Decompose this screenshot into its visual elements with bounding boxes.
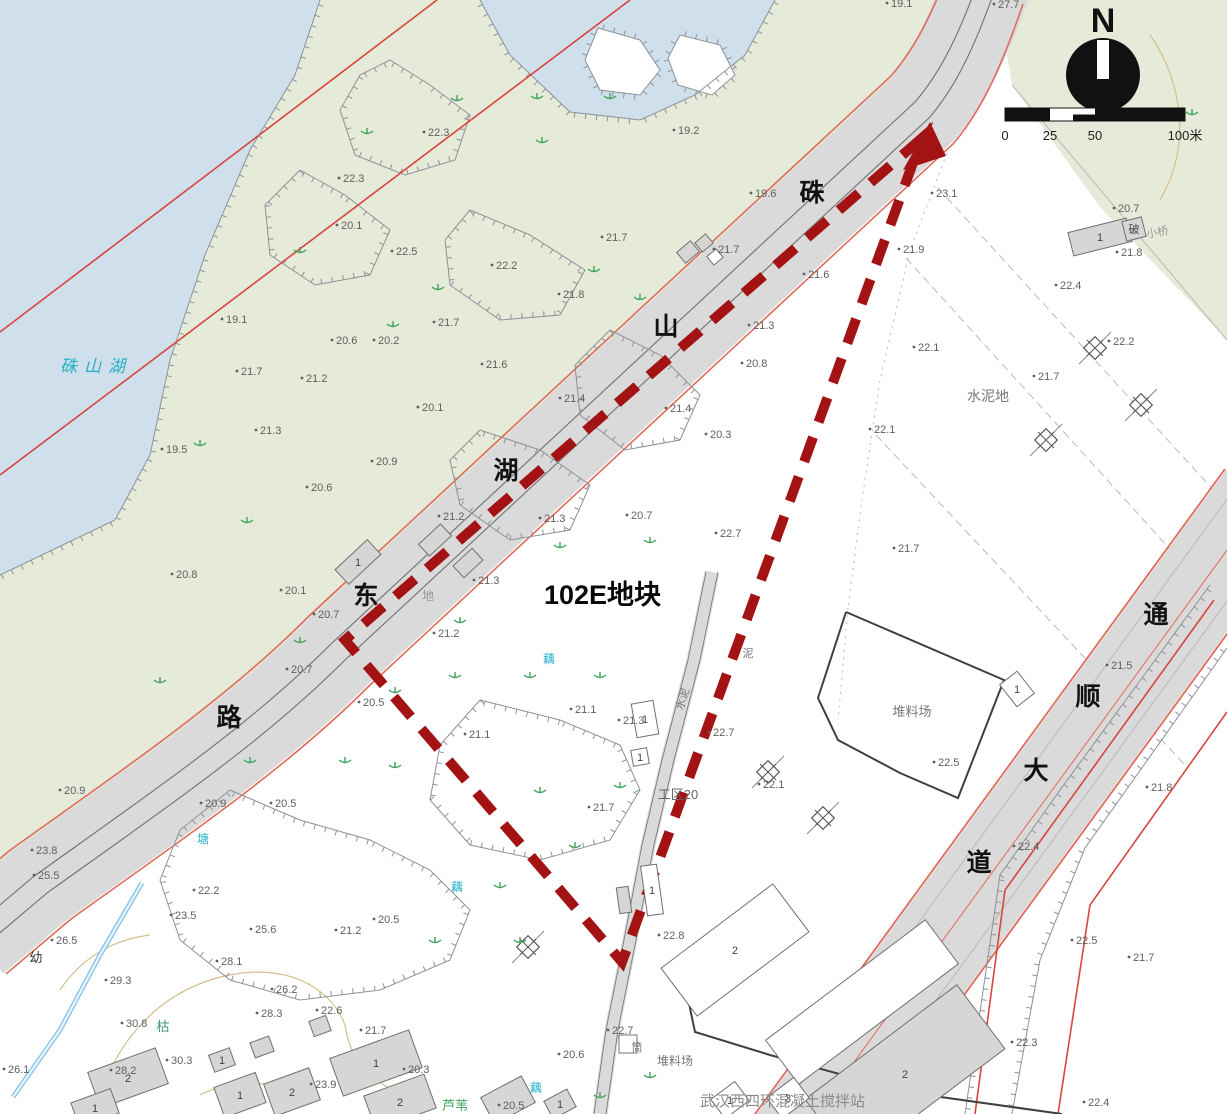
spot-dot bbox=[559, 397, 562, 400]
spot-dot bbox=[335, 929, 338, 932]
spot-dot bbox=[271, 988, 274, 991]
building-label: 1 bbox=[219, 1055, 225, 1067]
spot-dot bbox=[438, 515, 441, 518]
spot-elevation: 20.9 bbox=[376, 456, 397, 468]
spot-dot bbox=[1108, 340, 1111, 343]
bank-tick bbox=[446, 247, 451, 248]
road-name-char: 通 bbox=[1143, 601, 1168, 629]
topographic-map-svg: 1破1111122132121211119.127.723.120.721.82… bbox=[0, 0, 1227, 1114]
spot-dot bbox=[993, 3, 996, 6]
spot-dot bbox=[869, 428, 872, 431]
spot-dot bbox=[1113, 207, 1116, 210]
building-label: 2 bbox=[902, 1069, 908, 1081]
spot-dot bbox=[539, 517, 542, 520]
spot-elevation: 21.7 bbox=[606, 232, 627, 244]
spot-dot bbox=[1106, 664, 1109, 667]
map-label: 武汉西四环混凝土搅拌站 bbox=[700, 1093, 865, 1110]
scalebar-seg bbox=[1050, 108, 1095, 115]
spot-elevation: 22.3 bbox=[1016, 1037, 1037, 1049]
map-label: 工区20 bbox=[658, 787, 698, 802]
spot-dot bbox=[708, 731, 711, 734]
spot-dot bbox=[588, 806, 591, 809]
map-label: 筒 bbox=[632, 1040, 643, 1054]
map-label: 枯 bbox=[156, 1019, 169, 1034]
spot-elevation: 21.2 bbox=[340, 925, 361, 937]
bank-tick bbox=[448, 269, 453, 270]
map-label: 地 bbox=[422, 589, 434, 603]
spot-dot bbox=[417, 406, 420, 409]
spot-dot bbox=[200, 802, 203, 805]
spot-dot bbox=[105, 979, 108, 982]
road-name-char: 道 bbox=[966, 848, 991, 877]
spot-dot bbox=[121, 1022, 124, 1025]
spot-elevation: 21.5 bbox=[1111, 660, 1132, 672]
spot-dot bbox=[313, 613, 316, 616]
spot-elevation: 21.3 bbox=[623, 715, 644, 727]
spot-dot bbox=[360, 1029, 363, 1032]
spot-dot bbox=[898, 248, 901, 251]
spot-elevation: 20.8 bbox=[746, 358, 767, 370]
map-label: 堆料场 bbox=[892, 704, 931, 719]
spot-elevation: 27.7 bbox=[998, 0, 1019, 11]
bank-tick bbox=[449, 279, 454, 280]
spot-elevation: 21.8 bbox=[1121, 247, 1142, 259]
road-name-char: 湖 bbox=[493, 457, 518, 485]
road-name-char: 山 bbox=[653, 313, 678, 341]
spot-elevation: 19.2 bbox=[678, 125, 699, 137]
building-label: 破 bbox=[1129, 222, 1140, 236]
building-label: 1 bbox=[1097, 232, 1103, 244]
spot-elevation: 21.2 bbox=[443, 511, 464, 523]
spot-elevation: 21.6 bbox=[808, 269, 829, 281]
bank-tick bbox=[320, 992, 321, 997]
scalebar-label: 25 bbox=[1043, 128, 1057, 143]
bank-tick bbox=[607, 116, 608, 121]
map-label: 藕 bbox=[451, 880, 463, 894]
bank-tick bbox=[574, 113, 575, 118]
spot-dot bbox=[216, 960, 219, 963]
spot-dot bbox=[1055, 284, 1058, 287]
spot-elevation: 21.3 bbox=[753, 320, 774, 332]
spot-elevation: 21.7 bbox=[1038, 371, 1059, 383]
spot-dot bbox=[31, 849, 34, 852]
map-label: 102E地块 bbox=[544, 580, 662, 610]
spot-elevation: 20.9 bbox=[64, 785, 85, 797]
spot-elevation: 22.4 bbox=[1018, 841, 1039, 853]
map-label: 藕 bbox=[530, 1081, 542, 1095]
map-label: 藕 bbox=[543, 652, 555, 666]
spot-dot bbox=[310, 1083, 313, 1086]
spot-dot bbox=[51, 939, 54, 942]
spot-elevation: 26.2 bbox=[276, 984, 297, 996]
spot-elevation: 20.7 bbox=[318, 609, 339, 621]
spot-elevation: 19.1 bbox=[891, 0, 912, 10]
spot-dot bbox=[491, 264, 494, 267]
spot-dot bbox=[59, 789, 62, 792]
spot-dot bbox=[658, 934, 661, 937]
spot-dot bbox=[250, 928, 253, 931]
building: 破 bbox=[1122, 217, 1146, 241]
bank-tick bbox=[624, 93, 625, 98]
map-label: 水泥地 bbox=[967, 388, 1009, 404]
road-name-char: 硃 bbox=[799, 179, 825, 207]
spot-elevation: 20.1 bbox=[341, 220, 362, 232]
spot-elevation: 20.3 bbox=[408, 1064, 429, 1076]
bank-tick bbox=[618, 118, 619, 123]
spot-elevation: 21.2 bbox=[438, 628, 459, 640]
spot-elevation: 22.2 bbox=[496, 260, 517, 272]
spot-elevation: 21.7 bbox=[718, 244, 739, 256]
spot-elevation: 23.9 bbox=[315, 1079, 336, 1091]
spot-elevation: 20.1 bbox=[422, 402, 443, 414]
spot-dot bbox=[403, 1068, 406, 1071]
spot-dot bbox=[570, 708, 573, 711]
road-name-char: 东 bbox=[353, 581, 378, 610]
spot-dot bbox=[748, 324, 751, 327]
spot-elevation: 21.6 bbox=[486, 359, 507, 371]
spot-elevation: 21.8 bbox=[1151, 782, 1172, 794]
spot-dot bbox=[1071, 939, 1074, 942]
spot-elevation: 21.9 bbox=[903, 244, 924, 256]
spot-elevation: 21.4 bbox=[564, 393, 585, 405]
spot-dot bbox=[498, 1104, 501, 1107]
spot-elevation: 20.2 bbox=[378, 335, 399, 347]
spot-elevation: 28.2 bbox=[115, 1065, 136, 1077]
building-label: 1 bbox=[637, 752, 643, 764]
spot-elevation: 20.5 bbox=[363, 697, 384, 709]
spot-dot bbox=[886, 2, 889, 5]
road-name-char: 路 bbox=[216, 704, 242, 732]
spot-elevation: 23.1 bbox=[936, 188, 957, 200]
map-label: 塘 bbox=[197, 831, 209, 846]
north-arrow-notch bbox=[1097, 40, 1109, 79]
building-label: 1 bbox=[373, 1058, 379, 1070]
spot-dot bbox=[1013, 845, 1016, 848]
spot-dot bbox=[715, 532, 718, 535]
spot-elevation: 20.7 bbox=[631, 510, 652, 522]
spot-elevation: 21.4 bbox=[670, 403, 691, 415]
spot-elevation: 22.7 bbox=[612, 1025, 633, 1037]
spot-dot bbox=[3, 1068, 6, 1071]
spot-dot bbox=[161, 448, 164, 451]
spot-dot bbox=[705, 433, 708, 436]
spot-dot bbox=[423, 131, 426, 134]
spot-elevation: 21.7 bbox=[365, 1025, 386, 1037]
bank-tick bbox=[342, 990, 343, 995]
spot-elevation: 23.8 bbox=[36, 845, 57, 857]
bank-tick bbox=[374, 986, 375, 991]
spot-dot bbox=[607, 1029, 610, 1032]
spot-dot bbox=[256, 1012, 259, 1015]
spot-elevation: 21.3 bbox=[544, 513, 565, 525]
spot-dot bbox=[236, 370, 239, 373]
spot-elevation: 21.7 bbox=[241, 366, 262, 378]
spot-dot bbox=[473, 579, 476, 582]
spot-elevation: 28.3 bbox=[261, 1008, 282, 1020]
spot-elevation: 20.8 bbox=[176, 569, 197, 581]
spot-dot bbox=[306, 486, 309, 489]
spot-dot bbox=[933, 761, 936, 764]
spot-elevation: 25.6 bbox=[255, 924, 276, 936]
spot-elevation: 23.5 bbox=[175, 910, 196, 922]
scalebar-label: 100米 bbox=[1168, 128, 1203, 143]
spot-dot bbox=[558, 293, 561, 296]
bank-tick bbox=[309, 994, 310, 999]
spot-elevation: 22.5 bbox=[938, 757, 959, 769]
spot-dot bbox=[270, 802, 273, 805]
spot-dot bbox=[481, 363, 484, 366]
spot-dot bbox=[280, 589, 283, 592]
spot-elevation: 20.6 bbox=[336, 335, 357, 347]
building-label: 1 bbox=[237, 1090, 243, 1102]
bank-tick bbox=[585, 114, 586, 119]
spot-elevation: 22.7 bbox=[720, 528, 741, 540]
spot-elevation: 19.1 bbox=[226, 314, 247, 326]
building-label: 1 bbox=[1014, 684, 1020, 696]
spot-dot bbox=[301, 377, 304, 380]
spot-elevation: 20.5 bbox=[503, 1100, 524, 1112]
spot-dot bbox=[373, 918, 376, 921]
spot-dot bbox=[286, 668, 289, 671]
spot-dot bbox=[373, 339, 376, 342]
spot-elevation: 22.7 bbox=[713, 727, 734, 739]
spot-dot bbox=[166, 1059, 169, 1062]
spot-elevation: 20.5 bbox=[378, 914, 399, 926]
spot-elevation: 22.3 bbox=[343, 173, 364, 185]
spot-dot bbox=[1011, 1041, 1014, 1044]
bank-tick bbox=[602, 90, 603, 95]
spot-elevation: 22.1 bbox=[918, 342, 939, 354]
map-label: 泥 bbox=[743, 647, 754, 660]
scalebar-label: 0 bbox=[1001, 128, 1008, 143]
bank-tick bbox=[613, 92, 614, 97]
spot-elevation: 30.3 bbox=[171, 1055, 192, 1067]
spot-dot bbox=[331, 339, 334, 342]
spot-dot bbox=[713, 248, 716, 251]
spot-elevation: 28.1 bbox=[221, 956, 242, 968]
spot-elevation: 22.5 bbox=[396, 246, 417, 258]
spot-dot bbox=[673, 129, 676, 132]
spot-dot bbox=[433, 632, 436, 635]
spot-dot bbox=[358, 701, 361, 704]
north-label: N bbox=[1091, 2, 1116, 40]
building-label: 2 bbox=[289, 1087, 295, 1099]
building-label: 2 bbox=[397, 1097, 403, 1109]
spot-elevation: 21.7 bbox=[593, 802, 614, 814]
spot-elevation: 21.1 bbox=[575, 704, 596, 716]
spot-dot bbox=[371, 460, 374, 463]
spot-dot bbox=[741, 362, 744, 365]
spot-dot bbox=[803, 273, 806, 276]
spot-elevation: 19.6 bbox=[755, 188, 776, 200]
spot-elevation: 22.8 bbox=[663, 930, 684, 942]
spot-dot bbox=[893, 547, 896, 550]
spot-dot bbox=[1128, 956, 1131, 959]
spot-dot bbox=[221, 318, 224, 321]
building-label: 2 bbox=[732, 945, 738, 957]
map-label: 芦苇 bbox=[442, 1098, 468, 1113]
spot-elevation: 21.1 bbox=[469, 729, 490, 741]
spot-dot bbox=[1116, 251, 1119, 254]
spot-elevation: 26.1 bbox=[8, 1064, 29, 1076]
spot-elevation: 22.5 bbox=[1076, 935, 1097, 947]
spot-dot bbox=[391, 250, 394, 253]
bank-tick bbox=[331, 991, 332, 996]
bank-tick bbox=[629, 119, 630, 124]
building-label: 1 bbox=[557, 1099, 563, 1111]
spot-elevation: 29.3 bbox=[110, 975, 131, 987]
spot-elevation: 22.3 bbox=[428, 127, 449, 139]
spot-dot bbox=[750, 192, 753, 195]
spot-elevation: 21.3 bbox=[478, 575, 499, 587]
spot-dot bbox=[316, 1009, 319, 1012]
spot-elevation: 21.2 bbox=[306, 373, 327, 385]
spot-elevation: 21.7 bbox=[1133, 952, 1154, 964]
spot-elevation: 22.6 bbox=[321, 1005, 342, 1017]
spot-elevation: 22.4 bbox=[1088, 1097, 1109, 1109]
building-label: 1 bbox=[649, 885, 655, 897]
spot-elevation: 20.6 bbox=[311, 482, 332, 494]
map-label: 堆料场 bbox=[657, 1054, 693, 1068]
spot-elevation: 20.1 bbox=[285, 585, 306, 597]
spot-elevation: 20.9 bbox=[205, 798, 226, 810]
spot-dot bbox=[33, 874, 36, 877]
spot-elevation: 22.1 bbox=[874, 424, 895, 436]
building-label: 1 bbox=[92, 1103, 98, 1114]
spot-dot bbox=[931, 192, 934, 195]
spot-dot bbox=[913, 346, 916, 349]
road-name-char: 大 bbox=[1023, 757, 1048, 785]
map-label: 幼 bbox=[29, 950, 42, 965]
spot-elevation: 22.2 bbox=[198, 885, 219, 897]
spot-elevation: 19.5 bbox=[166, 444, 187, 456]
spot-elevation: 30.8 bbox=[126, 1018, 147, 1030]
spot-elevation: 25.5 bbox=[38, 870, 59, 882]
spot-elevation: 20.6 bbox=[563, 1049, 584, 1061]
spot-elevation: 22.4 bbox=[1060, 280, 1081, 292]
building: 1 bbox=[631, 748, 650, 767]
spot-dot bbox=[665, 407, 668, 410]
spot-dot bbox=[618, 719, 621, 722]
spot-dot bbox=[758, 783, 761, 786]
bank-tick bbox=[447, 258, 452, 259]
spot-dot bbox=[1083, 1101, 1086, 1104]
spot-dot bbox=[558, 1053, 561, 1056]
scalebar-label: 50 bbox=[1088, 128, 1102, 143]
scalebar-seg bbox=[1050, 115, 1073, 122]
bank-tick bbox=[364, 987, 365, 992]
spot-dot bbox=[433, 321, 436, 324]
spot-dot bbox=[171, 573, 174, 576]
spot-elevation: 21.7 bbox=[898, 543, 919, 555]
spot-elevation: 20.7 bbox=[291, 664, 312, 676]
spot-elevation: 21.7 bbox=[438, 317, 459, 329]
spot-elevation: 22.1 bbox=[763, 779, 784, 791]
bank-tick bbox=[634, 94, 635, 99]
road-name-char: 顺 bbox=[1075, 683, 1100, 711]
spot-dot bbox=[601, 236, 604, 239]
bank-tick bbox=[596, 115, 597, 120]
spot-dot bbox=[336, 224, 339, 227]
spot-dot bbox=[1146, 786, 1149, 789]
spot-dot bbox=[193, 889, 196, 892]
spot-elevation: 20.7 bbox=[1118, 203, 1139, 215]
spot-elevation: 20.5 bbox=[275, 798, 296, 810]
spot-dot bbox=[170, 914, 173, 917]
spot-dot bbox=[626, 514, 629, 517]
spot-dot bbox=[1033, 375, 1036, 378]
spot-dot bbox=[110, 1069, 113, 1072]
spot-dot bbox=[255, 429, 258, 432]
map-label: 硃山湖 bbox=[60, 357, 132, 376]
building-label: 1 bbox=[355, 557, 361, 569]
spot-dot bbox=[338, 177, 341, 180]
spot-elevation: 21.8 bbox=[563, 289, 584, 301]
spot-elevation: 26.5 bbox=[56, 935, 77, 947]
spot-elevation: 22.2 bbox=[1113, 336, 1134, 348]
bank-tick bbox=[353, 988, 354, 993]
spot-elevation: 20.3 bbox=[710, 429, 731, 441]
spot-elevation: 21.3 bbox=[260, 425, 281, 437]
map-image: 1破1111122132121211119.127.723.120.721.82… bbox=[0, 0, 1227, 1114]
spot-dot bbox=[464, 733, 467, 736]
